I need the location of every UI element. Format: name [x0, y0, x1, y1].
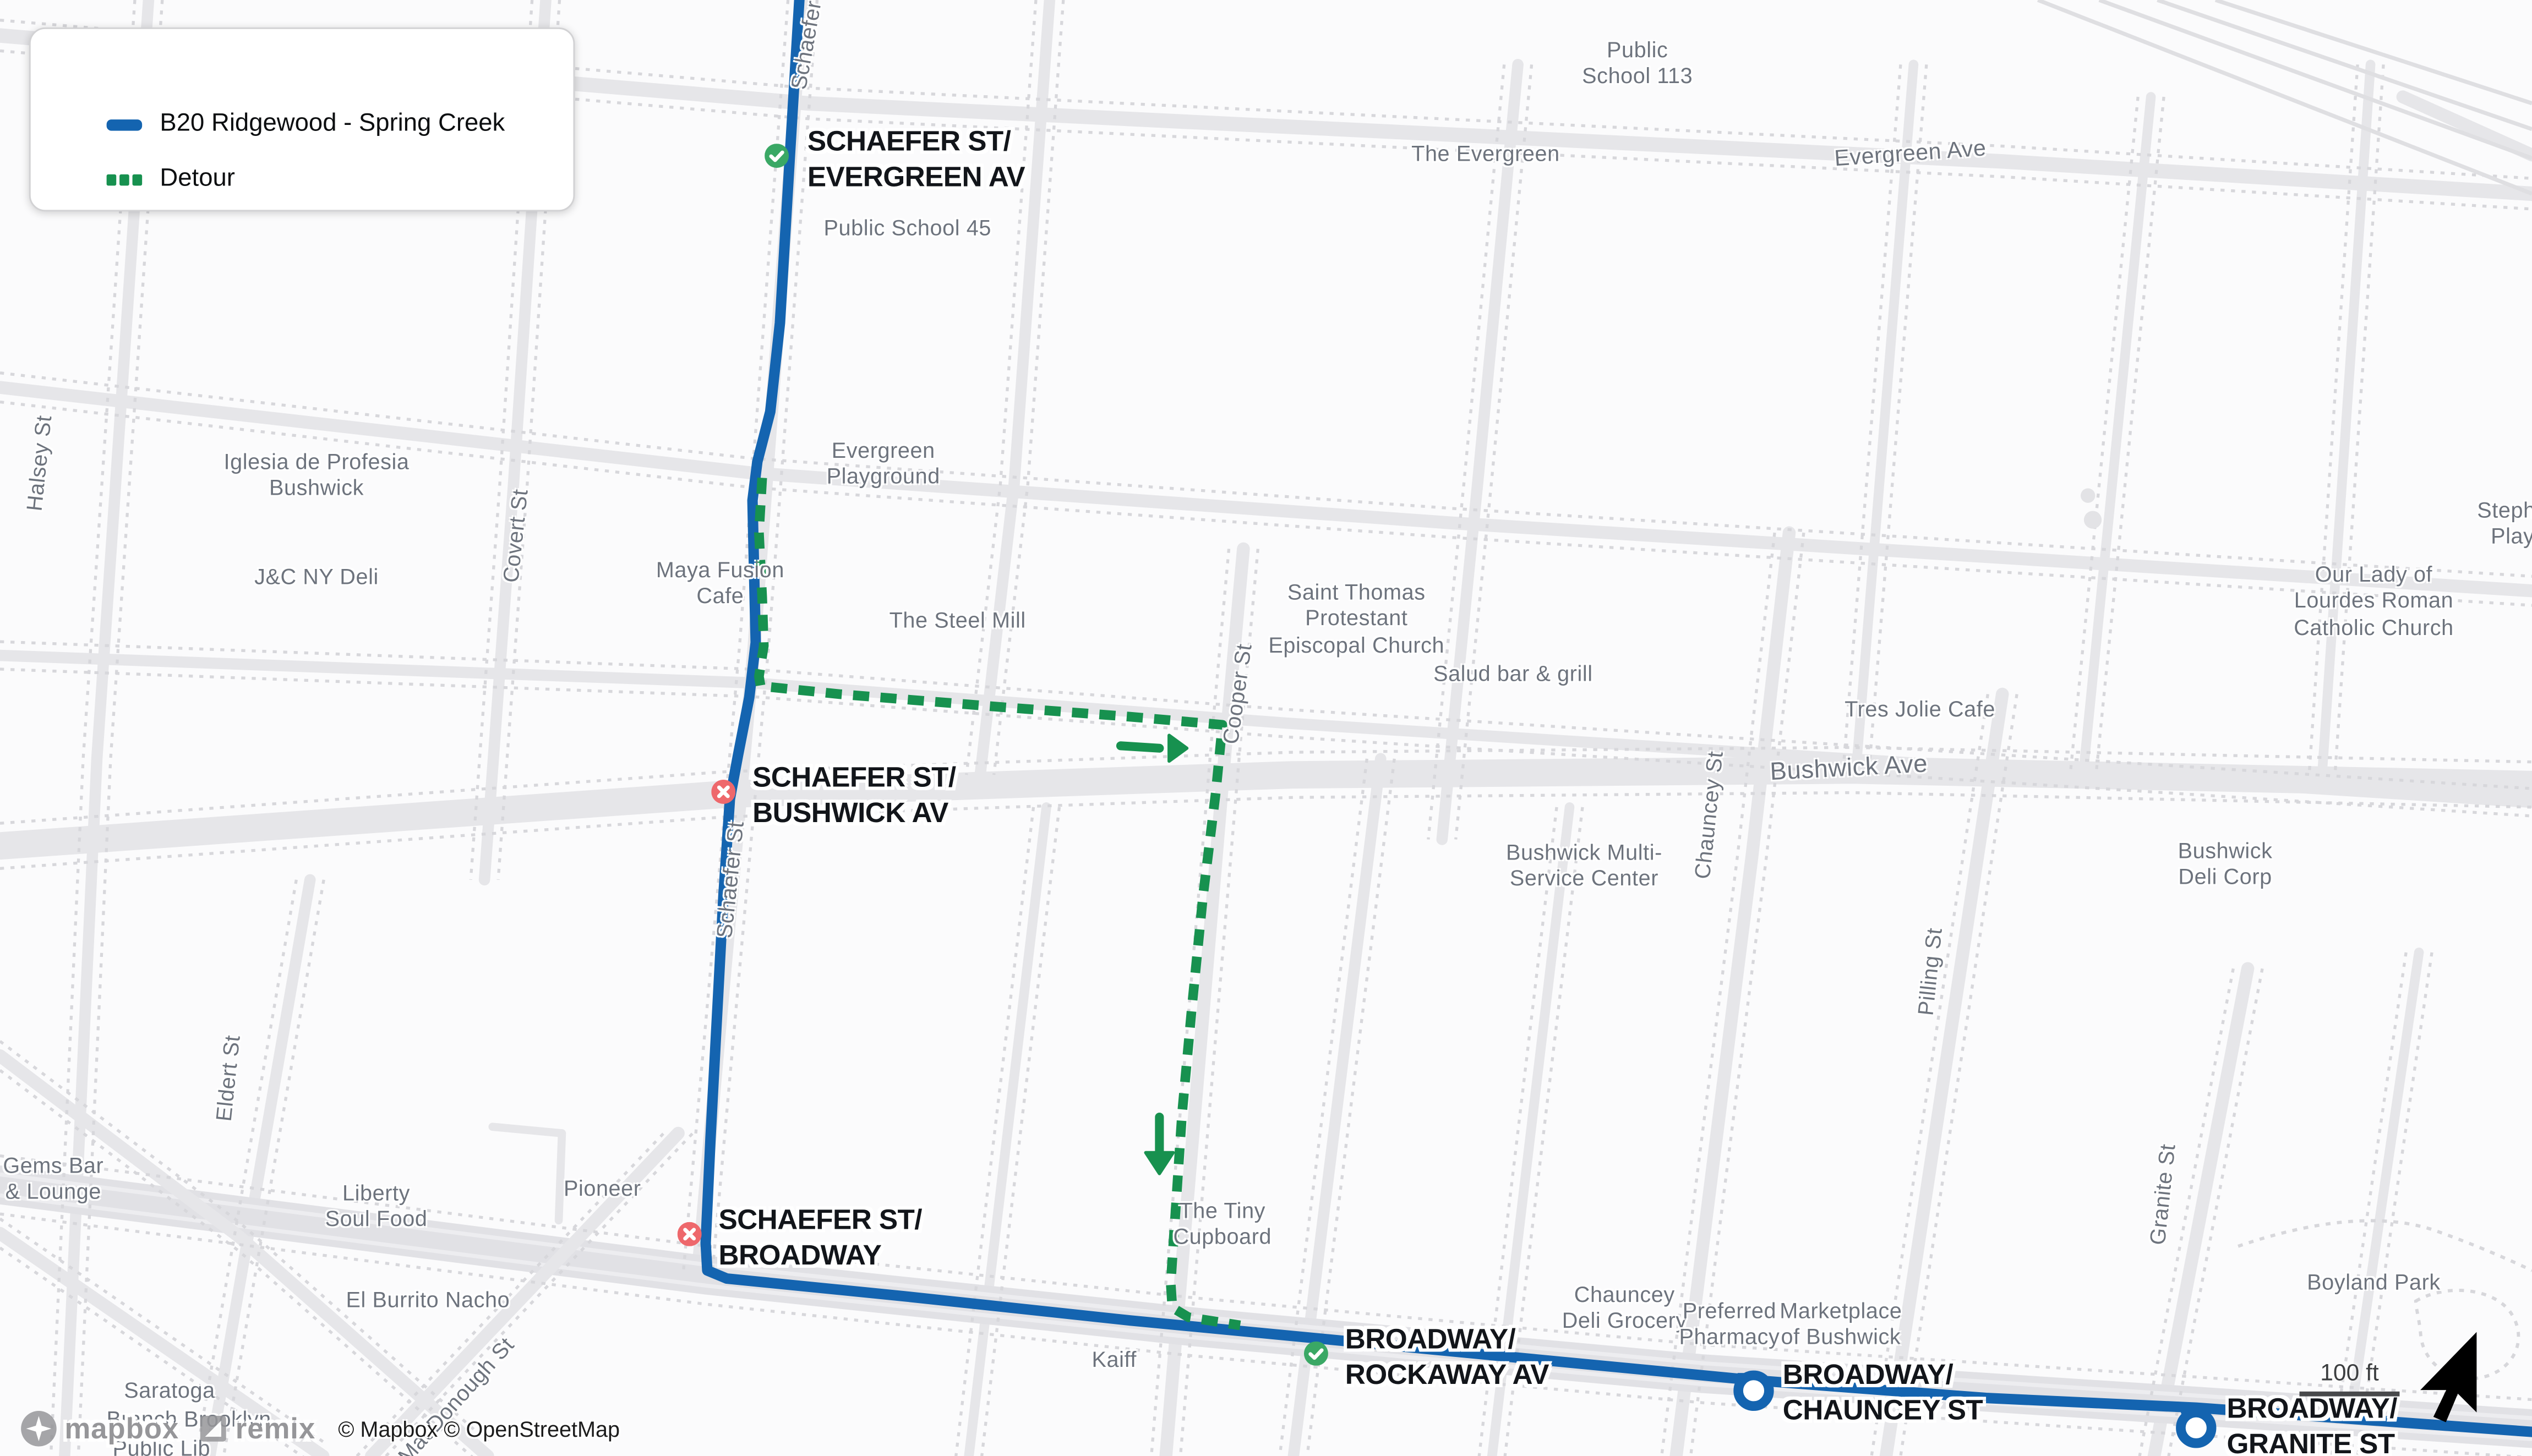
remix-logo-icon[interactable]: [195, 1411, 231, 1447]
scale-label: 100 ft: [2300, 1361, 2400, 1387]
mapbox-wordmark[interactable]: mapbox: [64, 1411, 179, 1446]
stop-label: SCHAEFER ST/ BROADWAY: [718, 1203, 922, 1273]
scale-bar: [2300, 1392, 2400, 1397]
detour-dash-swatch: [107, 173, 143, 185]
stop-label: SCHAEFER ST/ BUSHWICK AV: [752, 761, 956, 831]
stop-marker-closed-icon: [678, 1222, 702, 1255]
remix-wordmark[interactable]: remix: [236, 1411, 315, 1446]
map-canvas[interactable]: SchaeferSchaefer StHalsey StCovert StCoo…: [0, 0, 2532, 1456]
legend-route-label: B20 Ridgewood - Spring Creek: [160, 110, 505, 139]
stop-marker-served-icon: [1304, 1342, 1328, 1374]
stop-label: BROADWAY/ ROCKAWAY AV: [1345, 1323, 1549, 1393]
stop-marker-regular-icon: [1733, 1370, 1775, 1420]
legend-detour-item: Detour: [107, 163, 235, 195]
mapbox-logo-icon[interactable]: [19, 1409, 58, 1448]
legend-route-item: B20 Ridgewood - Spring Creek: [107, 108, 505, 141]
stop-marker-regular-icon: [2175, 1407, 2217, 1456]
scale-control: 100 ft: [2300, 1361, 2400, 1397]
legend-card: B20 Ridgewood - Spring Creek Detour: [29, 28, 575, 211]
legend-detour-label: Detour: [160, 165, 235, 194]
stops-layer: SCHAEFER ST/ EVERGREEN AVSCHAEFER ST/ BU…: [0, 0, 2532, 1456]
stop-label: SCHAEFER ST/ EVERGREEN AV: [807, 125, 1025, 195]
attribution-bar: mapbox remix © Mapbox © OpenStreetMap: [19, 1404, 620, 1453]
route-line-swatch: [107, 119, 143, 130]
attribution-copyright[interactable]: © Mapbox © OpenStreetMap: [338, 1416, 620, 1441]
stop-label: BROADWAY/ CHAUNCEY ST: [1783, 1358, 1983, 1428]
screenshot-root: SchaeferSchaefer StHalsey StCovert StCoo…: [0, 0, 2532, 1456]
stop-label: BROADWAY/ GRANITE ST: [2227, 1392, 2397, 1456]
mouse-cursor-icon: [2416, 1330, 2480, 1430]
stop-marker-served-icon: [765, 144, 789, 176]
stop-marker-closed-icon: [711, 780, 735, 812]
